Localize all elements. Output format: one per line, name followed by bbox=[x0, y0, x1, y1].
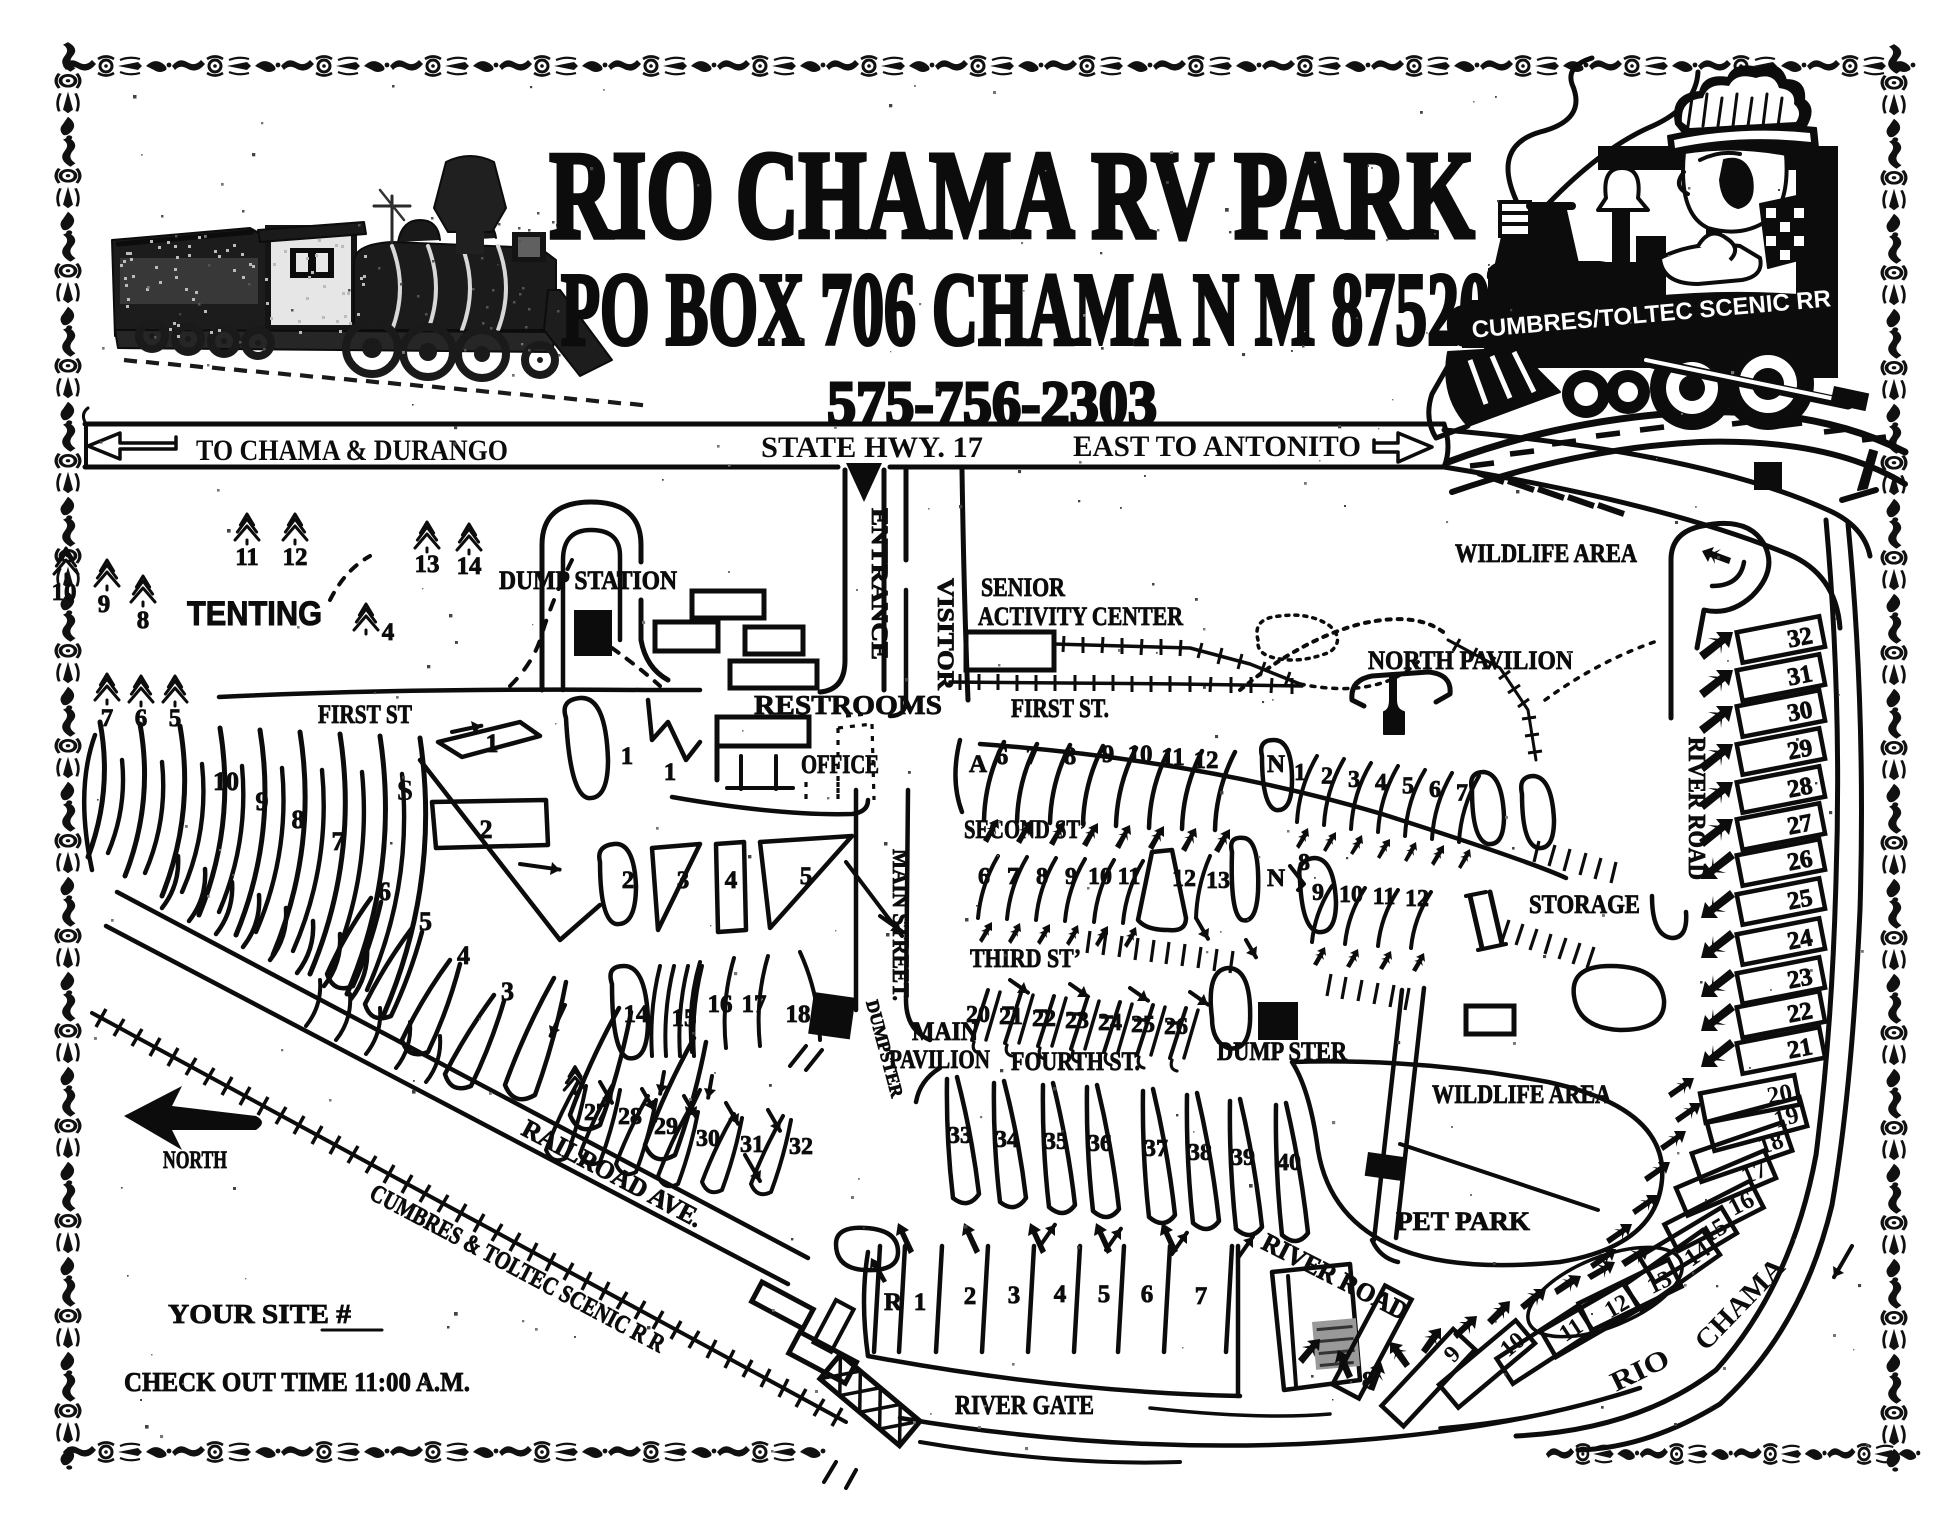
svg-text:FIRST ST: FIRST ST bbox=[318, 700, 412, 729]
svg-text:4: 4 bbox=[382, 619, 395, 646]
svg-text:37: 37 bbox=[1144, 1136, 1168, 1162]
svg-text:32: 32 bbox=[789, 1134, 813, 1160]
svg-text:VISITOR: VISITOR bbox=[933, 578, 958, 690]
svg-text:21: 21 bbox=[1785, 1033, 1815, 1064]
svg-text:N: N bbox=[1267, 751, 1285, 778]
svg-text:9: 9 bbox=[1312, 880, 1324, 906]
svg-text:1: 1 bbox=[664, 759, 677, 786]
svg-text:2: 2 bbox=[622, 867, 635, 894]
svg-text:A: A bbox=[969, 751, 987, 778]
svg-text:4: 4 bbox=[1054, 1281, 1067, 1308]
svg-text:12: 12 bbox=[283, 544, 308, 571]
svg-text:MAIN STREET.: MAIN STREET. bbox=[888, 849, 913, 1001]
svg-text:7: 7 bbox=[1007, 864, 1019, 890]
svg-text:S: S bbox=[397, 774, 414, 807]
svg-text:38: 38 bbox=[1188, 1140, 1212, 1166]
svg-text:PO BOX 706 CHAMA N M 87520: PO BOX 706 CHAMA N M 87520 bbox=[561, 252, 1491, 367]
svg-text:WILDLIFE AREA: WILDLIFE AREA bbox=[1455, 539, 1637, 568]
svg-text:24: 24 bbox=[1098, 1010, 1122, 1036]
svg-text:CHECK OUT TIME 11:00 A.M.: CHECK OUT TIME 11:00 A.M. bbox=[124, 1367, 470, 1397]
svg-text:23: 23 bbox=[1785, 963, 1815, 994]
svg-text:TENTING: TENTING bbox=[187, 595, 322, 633]
svg-text:DUMP STATION: DUMP STATION bbox=[499, 566, 677, 595]
svg-text:26: 26 bbox=[1785, 845, 1815, 876]
svg-text:30: 30 bbox=[1785, 696, 1815, 727]
svg-text:9: 9 bbox=[1065, 864, 1077, 890]
svg-text:4: 4 bbox=[1375, 770, 1387, 796]
svg-text:TO CHAMA & DURANGO: TO CHAMA & DURANGO bbox=[196, 434, 508, 467]
svg-text:14: 14 bbox=[624, 1001, 650, 1028]
svg-text:SENIOR: SENIOR bbox=[981, 573, 1065, 602]
svg-text:3: 3 bbox=[1008, 1282, 1021, 1309]
svg-text:6: 6 bbox=[378, 877, 391, 906]
svg-text:16: 16 bbox=[708, 991, 733, 1018]
svg-text:3: 3 bbox=[1348, 767, 1360, 793]
svg-text:10: 10 bbox=[52, 579, 77, 606]
svg-text:NORTH PAVILION: NORTH PAVILION bbox=[1368, 646, 1573, 675]
svg-text:STORAGE: STORAGE bbox=[1529, 890, 1640, 919]
svg-text:2: 2 bbox=[1321, 763, 1333, 789]
svg-text:ENTRANCE: ENTRANCE bbox=[867, 508, 892, 660]
svg-text:2: 2 bbox=[964, 1283, 977, 1310]
svg-text:10: 10 bbox=[1339, 882, 1363, 908]
svg-text:4: 4 bbox=[725, 867, 738, 894]
svg-text:17: 17 bbox=[742, 991, 767, 1018]
svg-text:6: 6 bbox=[1141, 1281, 1154, 1308]
svg-text:7: 7 bbox=[1195, 1283, 1208, 1310]
svg-text:8: 8 bbox=[137, 607, 150, 634]
svg-text:STATE HWY. 17: STATE HWY. 17 bbox=[761, 431, 983, 464]
svg-text:26: 26 bbox=[1164, 1014, 1188, 1040]
svg-text:THIRD ST’: THIRD ST’ bbox=[970, 944, 1081, 973]
svg-text:5: 5 bbox=[1402, 774, 1414, 800]
svg-text:36: 36 bbox=[1088, 1131, 1112, 1157]
svg-text:6: 6 bbox=[978, 864, 990, 890]
svg-text:NORTH: NORTH bbox=[163, 1147, 227, 1174]
svg-text:10: 10 bbox=[1088, 864, 1112, 890]
svg-text:8: 8 bbox=[1036, 864, 1048, 890]
svg-text:40: 40 bbox=[1277, 1150, 1301, 1176]
svg-text:20: 20 bbox=[966, 1002, 990, 1028]
svg-text:RIO CHAMA RV PARK: RIO CHAMA RV PARK bbox=[550, 127, 1475, 265]
svg-text:1: 1 bbox=[621, 743, 634, 770]
svg-text:1: 1 bbox=[914, 1289, 927, 1316]
svg-text:OFFICE: OFFICE bbox=[801, 750, 879, 779]
svg-text:1: 1 bbox=[1294, 760, 1306, 786]
svg-text:13: 13 bbox=[415, 551, 440, 578]
svg-text:5: 5 bbox=[1098, 1281, 1111, 1308]
svg-text:11: 11 bbox=[235, 544, 259, 571]
svg-text:12: 12 bbox=[1405, 886, 1429, 912]
svg-text:1: 1 bbox=[486, 729, 499, 758]
svg-text:575-756-2303: 575-756-2303 bbox=[827, 370, 1157, 438]
svg-text:ACTIVITY CENTER: ACTIVITY CENTER bbox=[978, 602, 1183, 631]
svg-text:RIVER GATE: RIVER GATE bbox=[955, 1390, 1094, 1420]
svg-text:25: 25 bbox=[1131, 1012, 1155, 1038]
svg-text:10: 10 bbox=[213, 767, 239, 796]
svg-text:3: 3 bbox=[677, 867, 690, 894]
svg-text:27: 27 bbox=[1785, 809, 1815, 840]
svg-text:5: 5 bbox=[419, 907, 432, 936]
svg-text:13: 13 bbox=[1206, 868, 1230, 894]
svg-text:11: 11 bbox=[1118, 864, 1141, 890]
svg-text:35: 35 bbox=[1044, 1129, 1068, 1155]
svg-text:15: 15 bbox=[672, 1005, 697, 1032]
svg-text:29: 29 bbox=[1785, 734, 1815, 765]
svg-text:34: 34 bbox=[995, 1127, 1019, 1153]
svg-text:9: 9 bbox=[256, 787, 269, 816]
svg-text:14: 14 bbox=[457, 553, 483, 580]
svg-text:28: 28 bbox=[1785, 772, 1815, 803]
svg-text:11: 11 bbox=[1373, 884, 1396, 910]
svg-text:31: 31 bbox=[1785, 660, 1815, 691]
svg-text:6: 6 bbox=[1429, 777, 1441, 803]
svg-text:33: 33 bbox=[948, 1123, 972, 1149]
svg-text:9: 9 bbox=[98, 591, 111, 618]
svg-text:32: 32 bbox=[1785, 622, 1815, 653]
svg-text:7: 7 bbox=[332, 827, 345, 856]
svg-text:PET PARK: PET PARK bbox=[1396, 1207, 1531, 1236]
svg-text:23: 23 bbox=[1065, 1008, 1089, 1034]
svg-text:FIRST ST.: FIRST ST. bbox=[1011, 694, 1109, 723]
svg-text:WILDLIFE AREA: WILDLIFE AREA bbox=[1432, 1080, 1611, 1109]
svg-text:EAST TO ANTONITO: EAST TO ANTONITO bbox=[1073, 430, 1361, 463]
svg-text:7: 7 bbox=[1456, 780, 1468, 806]
svg-text:12: 12 bbox=[1172, 866, 1196, 892]
svg-text:39: 39 bbox=[1231, 1145, 1255, 1171]
svg-text:N: N bbox=[1267, 865, 1285, 892]
svg-text:3: 3 bbox=[501, 977, 514, 1006]
svg-text:31: 31 bbox=[740, 1132, 764, 1158]
svg-text:5: 5 bbox=[800, 863, 813, 890]
svg-text:8: 8 bbox=[292, 805, 305, 834]
svg-text:25: 25 bbox=[1785, 884, 1815, 915]
svg-text:YOUR SITE #: YOUR SITE # bbox=[168, 1299, 352, 1329]
svg-text:4: 4 bbox=[457, 941, 470, 970]
svg-text:18: 18 bbox=[786, 1001, 811, 1028]
svg-text:22: 22 bbox=[1785, 997, 1815, 1028]
